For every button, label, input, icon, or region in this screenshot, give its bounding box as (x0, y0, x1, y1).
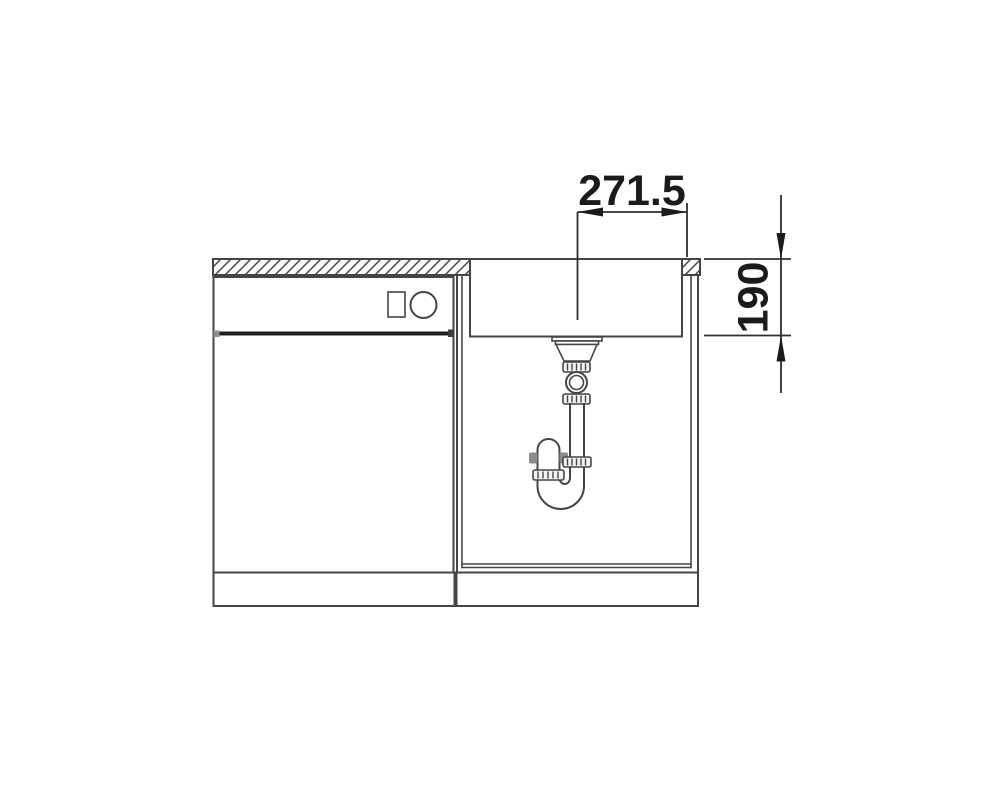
drawing-canvas: 271.5 190 (0, 0, 1000, 800)
plinth-right (457, 573, 699, 607)
dim-v-arrow-top (777, 233, 786, 259)
sink-bowl-outline (470, 259, 682, 337)
sink-base-cabinet (214, 275, 699, 606)
panel-groove-cap-right (448, 330, 454, 338)
left-unit-outline (214, 277, 454, 573)
countertop-hatch-left (213, 259, 470, 275)
countertop (213, 259, 700, 275)
drain-assembly (529, 337, 602, 509)
ball-joint-inner (570, 376, 584, 390)
control-knob (411, 292, 437, 318)
countertop-hatch-right (682, 259, 700, 275)
dim-v-label: 190 (730, 262, 778, 334)
dim-v-arrow-bottom (777, 336, 786, 362)
left-base-unit (214, 277, 455, 573)
dim-h-label: 271.5 (578, 167, 686, 215)
control-display (388, 292, 405, 317)
sink-bowl (470, 259, 682, 337)
sink-installation-diagram: 271.5 190 (0, 0, 1000, 800)
plinth-left (214, 573, 455, 607)
dimension-horizontal: 271.5 (578, 167, 688, 320)
panel-groove-cap-left (214, 331, 220, 338)
dimension-vertical: 190 (704, 195, 791, 393)
strainer-body (556, 345, 597, 362)
panel-groove (215, 332, 452, 336)
clamp-ear-left (529, 453, 538, 464)
